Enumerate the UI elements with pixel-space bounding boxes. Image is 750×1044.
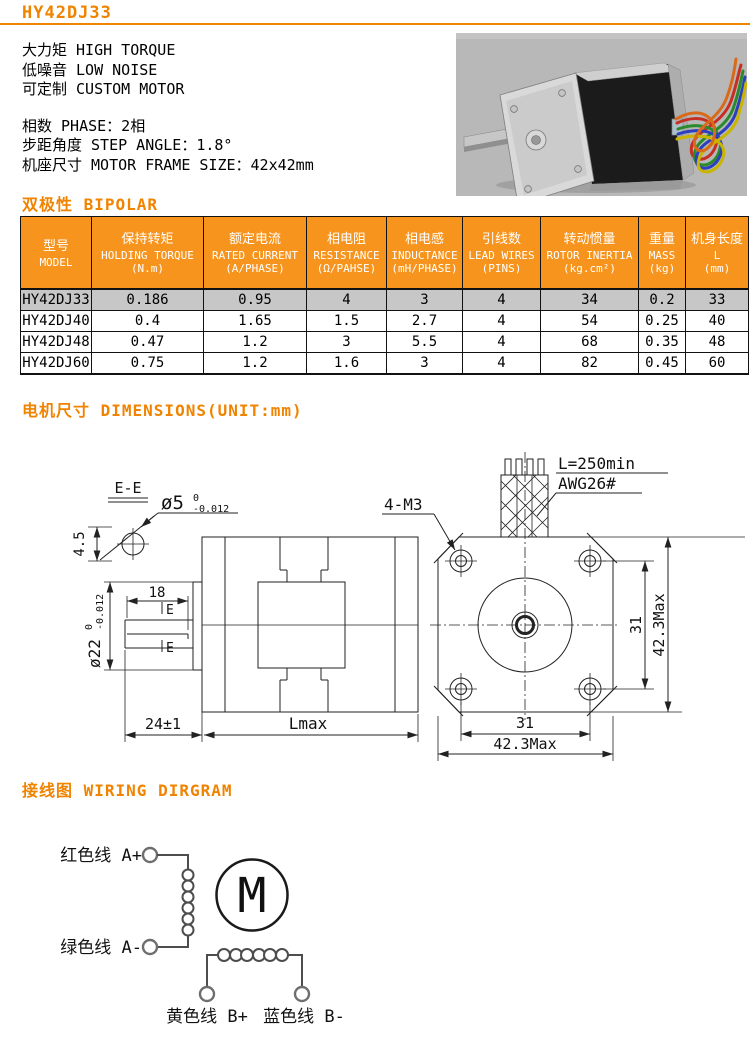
section-title-bipolar: 双极性 BIPOLAR [22,191,158,215]
product-photo [456,33,747,196]
cell-value: 5.5 [387,332,463,353]
cell-value: 1.65 [204,311,307,332]
cell-value: 82 [541,353,639,375]
cell-value: 3 [387,289,463,311]
lead-cable [501,459,548,537]
col-header-rotor-inertia: 转动惯量ROTOR INERTIA(kg.cm²) [541,217,639,290]
table-row: HY42DJ60 0.75 1.2 1.6 3 4 82 0.45 60 [21,353,749,375]
col-header-mass: 重量MASS(kg) [639,217,686,290]
dim-shaft-tol-upper: 0 [193,493,199,504]
cell-value: 0.47 [92,332,204,353]
cell-value: 40 [686,311,749,332]
cell-value: 0.95 [204,289,307,311]
cell-value: 0.186 [92,289,204,311]
cell-value: 1.5 [307,311,387,332]
cell-value: 0.45 [639,353,686,375]
section-mark-bottom: E [166,641,174,656]
cell-value: 0.35 [639,332,686,353]
col-header-model: 型号MODEL [21,217,92,290]
table-header-row: 型号MODEL 保持转矩HOLDING TORQUE(N.m) 额定电流RATE… [21,217,749,290]
section-title-dimensions: 电机尺寸 DIMENSIONS(UNIT:mm) [22,397,303,421]
cell-model: HY42DJ40 [21,311,92,332]
dim-flat-height: 4.5 [72,531,88,556]
dim-key-length: 18 [149,585,166,601]
table-row: HY42DJ48 0.47 1.2 3 5.5 4 68 0.35 48 [21,332,749,353]
page-title: HY42DJ33 [22,3,112,23]
cell-value: 3 [387,353,463,375]
motor-symbol: M [217,860,288,931]
col-header-length: 机身长度L(mm) [686,217,749,290]
spec-line: 步距角度 STEP ANGLE：1.8° [22,136,314,156]
intro-text: 大力矩 HIGH TORQUE 低噪音 LOW NOISE 可定制 CUSTOM… [22,41,314,175]
spec-table: 型号MODEL 保持转矩HOLDING TORQUE(N.m) 额定电流RATE… [20,216,749,375]
cell-model: HY42DJ33 [21,289,92,311]
stator-cross [258,537,345,712]
cell-value: 3 [307,332,387,353]
spec-line: 机座尺寸 MOTOR FRAME SIZE：42x42mm [22,156,314,176]
dim-pilot-tol-lower: -0.012 [95,594,106,630]
phase-b: 黄色线 B+ 蓝色线 B- [166,949,345,1027]
cell-value: 33 [686,289,749,311]
section-label: E-E [114,479,141,497]
cell-value: 60 [686,353,749,375]
dim-shaft-length: 24±1 [145,715,181,733]
motor-symbol-letter: M [238,868,267,924]
cell-model: HY42DJ60 [21,353,92,375]
cell-value: 1.2 [204,353,307,375]
cell-value: 4 [463,332,541,353]
cell-value: 4 [463,311,541,332]
feature-line: 低噪音 LOW NOISE [22,61,314,81]
cell-value: 0.4 [92,311,204,332]
cell-value: 54 [541,311,639,332]
cell-value: 1.6 [307,353,387,375]
front-view: L=250min AWG26# 4-M3 31 42.3Max [382,452,745,761]
section-title-wiring: 接线图 WIRING DIRGRAM [22,777,233,801]
datasheet-page: HY42DJ33 大力矩 HIGH TORQUE 低噪音 LOW NOISE 可… [0,0,750,1044]
cell-value: 4 [463,353,541,375]
dim-pilot-tol-upper: 0 [84,624,95,630]
cell-value: 68 [541,332,639,353]
cell-value: 0.25 [639,311,686,332]
label-mount-holes: 4-M3 [384,495,423,514]
col-header-lead-wires: 引线数LEAD WIRES(PINS) [463,217,541,290]
phase-a: 红色线 A+ 绿色线 A- [60,846,193,958]
dim-hole-spacing-h: 31 [516,714,534,732]
section-mark-top: E [166,603,174,618]
label-phase-a-plus: 红色线 A+ [60,846,142,866]
dim-body-length: Lmax [289,714,328,733]
dim-frame-width: 42.3Max [493,735,556,753]
dimension-drawing: E-E 4.5 ø5 0 -0.012 [0,430,750,775]
cell-value: 0.75 [92,353,204,375]
cell-value: 4 [463,289,541,311]
label-phase-b-minus: 蓝色线 B- [263,1007,345,1027]
col-header-holding-torque: 保持转矩HOLDING TORQUE(N.m) [92,217,204,290]
cell-value: 0.2 [639,289,686,311]
spacer [22,100,314,117]
dim-hole-spacing-v: 31 [627,616,645,634]
cell-value: 4 [307,289,387,311]
cell-value: 48 [686,332,749,353]
feature-line: 大力矩 HIGH TORQUE [22,41,314,61]
dim-shaft-dia: ø5 [161,492,184,514]
table-row: HY42DJ40 0.4 1.65 1.5 2.7 4 54 0.25 40 [21,311,749,332]
label-lead-gauge: AWG26# [558,474,616,493]
col-header-inductance: 相电感INDUCTANCE(mH/PHASE) [387,217,463,290]
spec-line: 相数 PHASE：2相 [22,117,314,137]
side-view: E-E 4.5 ø5 0 -0.012 [72,479,418,742]
feature-line: 可定制 CUSTOM MOTOR [22,80,314,100]
cell-value: 1.2 [204,332,307,353]
col-header-rated-current: 额定电流RATED CURRENT(A/PHASE) [204,217,307,290]
dim-frame-height: 42.3Max [650,593,668,656]
label-phase-b-plus: 黄色线 B+ [166,1007,248,1027]
col-header-resistance: 相电阻RESISTANCE(Ω/PAHSE) [307,217,387,290]
table-row: HY42DJ33 0.186 0.95 4 3 4 34 0.2 33 [21,289,749,311]
dim-pilot-dia: ø22 [85,639,104,668]
cell-model: HY42DJ48 [21,332,92,353]
wiring-diagram: 红色线 A+ 绿色线 A- M 黄色线 [0,818,420,1044]
cell-value: 34 [541,289,639,311]
title-divider [0,23,750,25]
cell-value: 2.7 [387,311,463,332]
label-lead-length: L=250min [558,454,635,473]
label-phase-a-minus: 绿色线 A- [60,938,142,958]
